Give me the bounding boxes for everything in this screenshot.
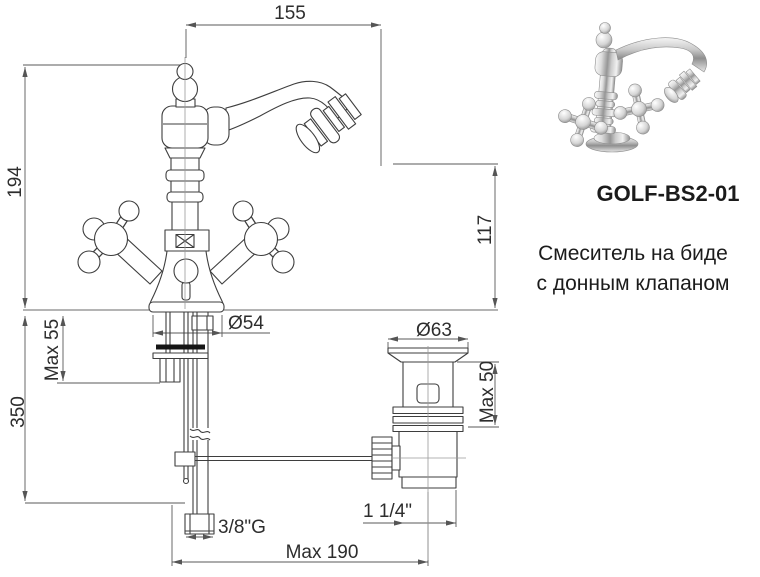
under-counter-parts	[153, 312, 372, 534]
drain-valve-drawing	[372, 346, 468, 560]
photo-right-handle	[609, 79, 669, 139]
dim-350-label: 350	[8, 396, 29, 428]
dim-d63-label: Ø63	[416, 320, 452, 341]
right-handle	[210, 201, 294, 284]
dim-117-label: 117	[475, 215, 496, 245]
dim-max55-label: Max 55	[42, 319, 63, 381]
washer	[153, 353, 208, 359]
product-photo	[551, 23, 707, 155]
photo-aerator	[660, 67, 702, 107]
left-handle	[78, 201, 162, 284]
gasket	[156, 345, 205, 350]
photo-finial-ball	[596, 32, 612, 48]
photo-spout	[616, 38, 707, 72]
mounting-nut	[160, 359, 180, 383]
dim-drain-thread-label: 1 1/4"	[363, 501, 412, 522]
supply-connection-nut	[192, 316, 213, 330]
dim-155-label: 155	[274, 3, 306, 24]
base-plate	[149, 302, 224, 312]
faucet-drawing	[78, 57, 372, 534]
dim-supply-thread-label: 3/8"G	[218, 517, 266, 538]
product-code: GOLF-BS2-01	[578, 181, 758, 207]
drain-tailpipe	[402, 477, 456, 488]
product-description: Смеситель на биде с донным клапаном	[510, 239, 756, 299]
dim-max50-label: Max 50	[477, 361, 498, 423]
description-line-1: Смеситель на биде	[510, 239, 756, 269]
dim-max190-label: Max 190	[286, 542, 359, 563]
popup-rod-clamp	[175, 452, 195, 466]
popup-knob-stem	[182, 282, 190, 300]
dim-d54-label: Ø54	[228, 313, 264, 334]
dim-194-label: 194	[5, 166, 26, 198]
catalog-page: 155 194 117 Ø54 Max 55 350 Ø63 Max 50 3/…	[0, 0, 760, 577]
description-line-2: с донным клапаном	[510, 269, 756, 299]
popup-knob	[174, 259, 198, 283]
diverter-box	[165, 230, 209, 251]
